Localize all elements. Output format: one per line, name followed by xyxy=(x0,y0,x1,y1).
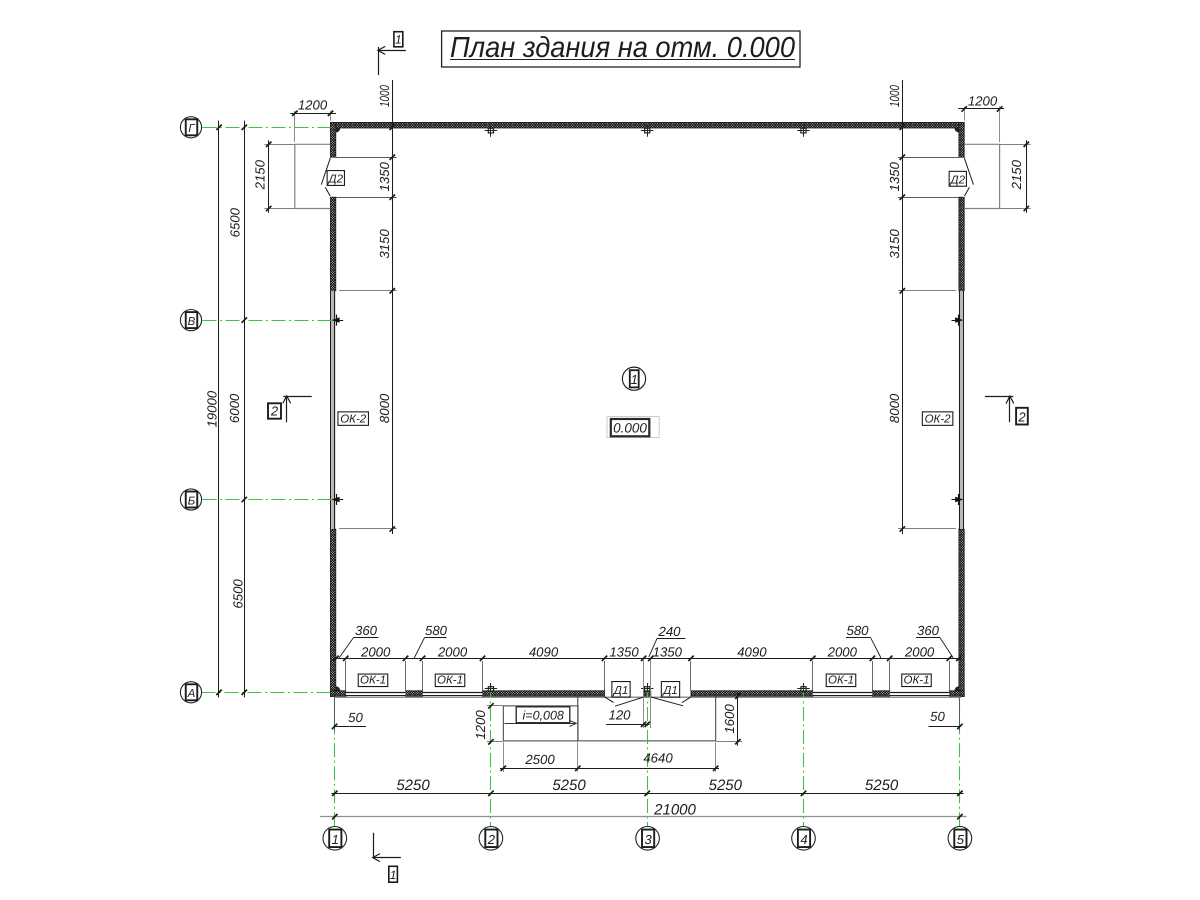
svg-text:i=0,008: i=0,008 xyxy=(523,709,564,723)
svg-text:5250: 5250 xyxy=(552,777,586,794)
svg-text:120: 120 xyxy=(608,708,631,723)
svg-text:19000: 19000 xyxy=(205,390,220,427)
svg-text:1350: 1350 xyxy=(887,161,902,191)
svg-text:2500: 2500 xyxy=(524,752,555,767)
svg-text:1: 1 xyxy=(332,832,339,847)
svg-text:50: 50 xyxy=(348,710,363,725)
svg-text:ОК-2: ОК-2 xyxy=(925,413,952,425)
svg-text:1600: 1600 xyxy=(722,704,737,734)
svg-text:1350: 1350 xyxy=(377,161,392,191)
svg-text:А: А xyxy=(187,688,196,700)
svg-text:8000: 8000 xyxy=(377,393,392,423)
svg-text:240: 240 xyxy=(657,624,681,639)
svg-text:4640: 4640 xyxy=(643,751,673,766)
svg-text:ОК-1: ОК-1 xyxy=(828,675,854,687)
svg-text:ОК-1: ОК-1 xyxy=(904,675,930,687)
svg-text:1: 1 xyxy=(390,868,397,882)
svg-text:ОК-1: ОК-1 xyxy=(360,675,386,687)
svg-text:580: 580 xyxy=(846,623,869,638)
svg-text:360: 360 xyxy=(917,623,940,638)
svg-text:2150: 2150 xyxy=(253,159,268,190)
svg-text:1: 1 xyxy=(631,372,638,387)
svg-text:1350: 1350 xyxy=(609,644,639,659)
svg-text:4090: 4090 xyxy=(529,644,559,659)
svg-text:4: 4 xyxy=(800,832,807,847)
svg-text:3: 3 xyxy=(644,832,652,847)
svg-text:5250: 5250 xyxy=(709,777,743,794)
svg-text:6500: 6500 xyxy=(231,579,246,609)
svg-text:1000: 1000 xyxy=(887,85,902,107)
svg-text:2000: 2000 xyxy=(904,644,935,659)
svg-text:Д1: Д1 xyxy=(612,685,629,697)
svg-text:1: 1 xyxy=(395,33,402,47)
svg-text:Д2: Д2 xyxy=(327,173,344,185)
svg-text:4090: 4090 xyxy=(737,644,767,659)
svg-text:Б: Б xyxy=(188,495,196,507)
svg-text:21000: 21000 xyxy=(653,802,696,819)
svg-text:2000: 2000 xyxy=(437,644,468,659)
svg-text:2150: 2150 xyxy=(1009,159,1024,190)
svg-text:5250: 5250 xyxy=(396,777,430,794)
svg-text:6000: 6000 xyxy=(227,393,242,423)
svg-text:360: 360 xyxy=(355,623,378,638)
svg-text:2000: 2000 xyxy=(827,644,858,659)
svg-text:ОК-1: ОК-1 xyxy=(437,675,463,687)
svg-text:2000: 2000 xyxy=(360,644,391,659)
svg-text:1200: 1200 xyxy=(298,98,328,113)
svg-text:Г: Г xyxy=(188,123,195,135)
svg-text:1200: 1200 xyxy=(473,710,488,740)
svg-text:2: 2 xyxy=(270,404,279,419)
svg-text:1200: 1200 xyxy=(968,93,998,108)
svg-text:5: 5 xyxy=(957,832,965,847)
svg-text:2: 2 xyxy=(1017,409,1026,424)
svg-text:В: В xyxy=(188,316,196,328)
svg-text:6500: 6500 xyxy=(228,207,243,237)
svg-text:580: 580 xyxy=(425,623,448,638)
svg-text:ОК-2: ОК-2 xyxy=(340,413,367,425)
svg-text:Д2: Д2 xyxy=(949,174,966,186)
svg-text:3150: 3150 xyxy=(377,229,392,259)
svg-text:5250: 5250 xyxy=(865,777,899,794)
svg-text:Д1: Д1 xyxy=(661,685,678,697)
svg-text:2: 2 xyxy=(487,832,496,847)
svg-text:50: 50 xyxy=(930,709,945,724)
svg-text:8000: 8000 xyxy=(887,393,902,423)
svg-text:1350: 1350 xyxy=(653,644,683,659)
svg-text:1000: 1000 xyxy=(377,85,392,107)
svg-text:3150: 3150 xyxy=(887,229,902,259)
svg-text:0.000: 0.000 xyxy=(613,420,647,435)
